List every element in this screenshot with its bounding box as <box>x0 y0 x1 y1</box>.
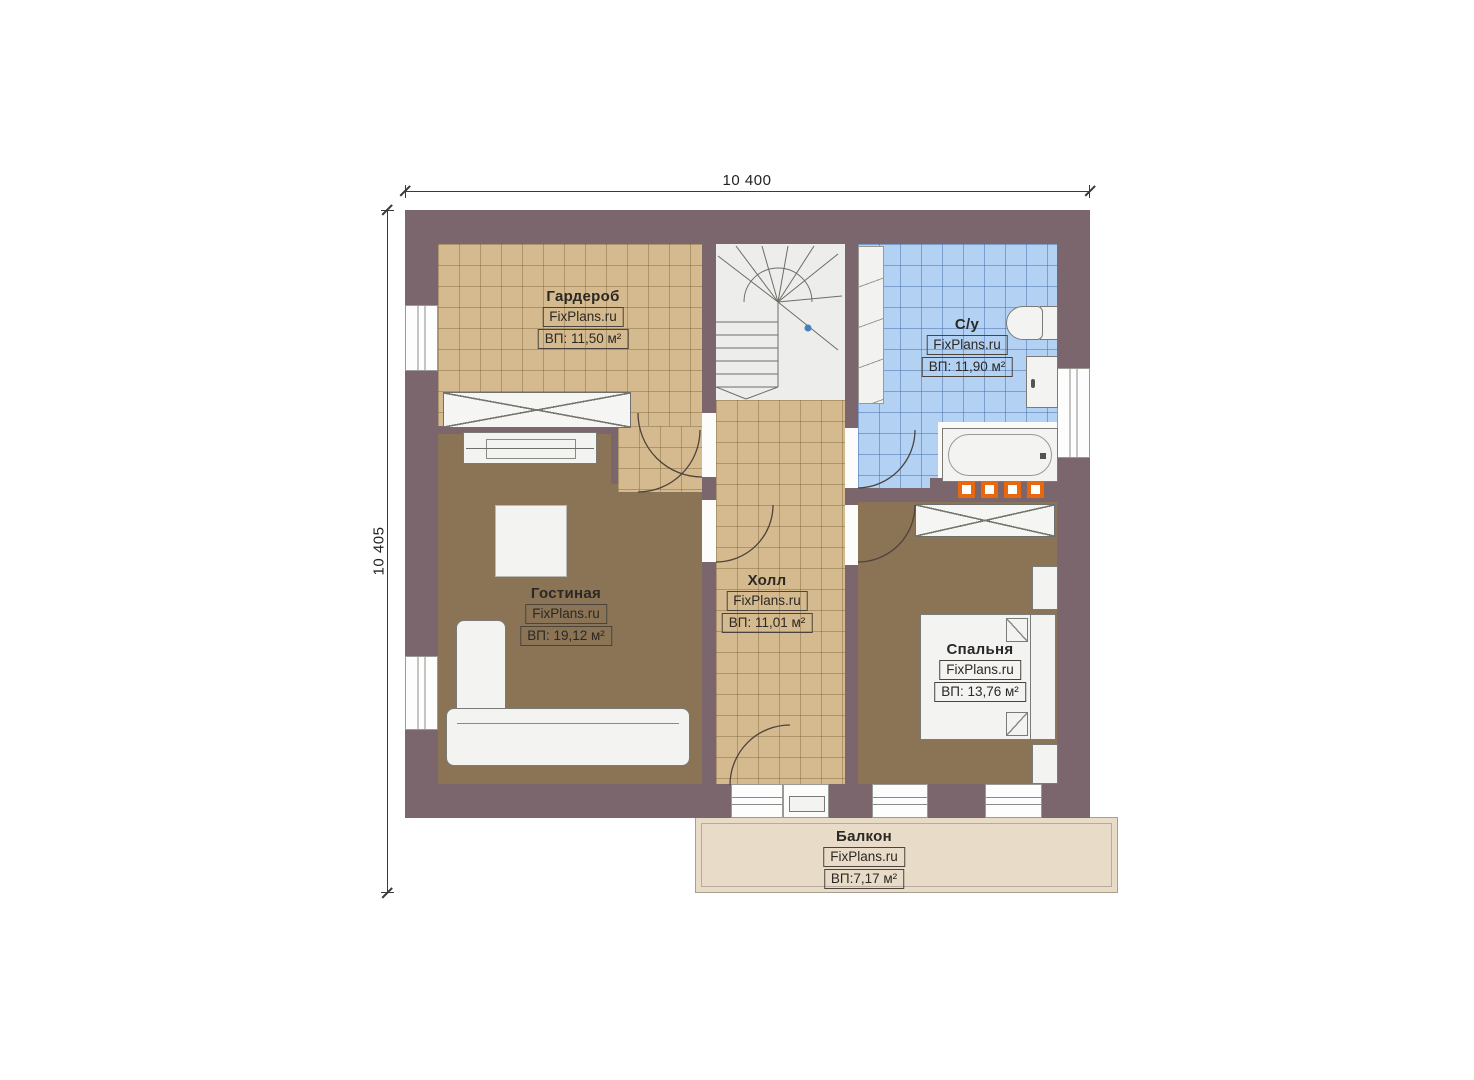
bathtub-basin <box>948 434 1052 476</box>
floor-plan-canvas: 10 400 10 405 <box>0 0 1474 1080</box>
room-area: ВП: 11,50 м² <box>538 329 629 349</box>
brand-badge: FixPlans.ru <box>926 335 1008 355</box>
sink-handle <box>1031 379 1035 388</box>
room-name: Гардероб <box>546 288 619 305</box>
room-name: Гостиная <box>531 585 601 602</box>
room-label-bedroom: Спальня FixPlans.ru ВП: 13,76 м² <box>934 641 1026 702</box>
room-label-hall: Холл FixPlans.ru ВП: 11,01 м² <box>722 572 813 633</box>
room-name: Холл <box>748 572 787 589</box>
room-label-living: Гостиная FixPlans.ru ВП: 19,12 м² <box>520 585 612 646</box>
brand-badge: FixPlans.ru <box>823 847 905 867</box>
bathroom-sink-cabinet <box>1026 356 1058 408</box>
room-area: ВП: 19,12 м² <box>520 626 612 646</box>
room-name: С/у <box>955 316 979 333</box>
wall-outer-right <box>1057 210 1090 818</box>
nightstand-bottom <box>1032 744 1058 784</box>
door-opening-living-upper <box>702 413 716 477</box>
room-label-balcony: Балкон FixPlans.ru ВП:7,17 м² <box>823 828 905 889</box>
dimension-label-top: 10 400 <box>723 172 772 189</box>
bed-pillow-top <box>1006 618 1028 642</box>
dimension-line-top <box>405 191 1090 192</box>
room-label-wardrobe: Гардероб FixPlans.ru ВП: 11,50 м² <box>538 288 629 349</box>
balcony-slab <box>695 817 1118 893</box>
room-area: ВП:7,17 м² <box>824 869 904 889</box>
sofa-seat-line <box>457 723 679 724</box>
wall-interior-bedroom-top <box>845 488 940 502</box>
radiator-segment <box>1004 481 1021 498</box>
dimension-extension <box>381 210 394 211</box>
door-opening-living-lower <box>702 500 716 562</box>
tv-stand-inner <box>486 439 576 459</box>
door-opening-bathroom <box>845 428 858 488</box>
staircase <box>716 244 845 400</box>
brand-badge: FixPlans.ru <box>726 591 808 611</box>
dimension-extension <box>405 185 406 198</box>
bathtub <box>942 428 1058 482</box>
staircase-drawing <box>716 244 845 400</box>
room-area: ВП: 11,90 м² <box>922 357 1013 377</box>
window-bottom-bedroom-2 <box>985 784 1042 818</box>
room-name: Балкон <box>836 828 892 845</box>
door-opening-bedroom <box>845 505 858 565</box>
wall-outer-top <box>405 210 1090 244</box>
brand-badge: FixPlans.ru <box>525 604 607 624</box>
room-area: ВП: 13,76 м² <box>934 682 1026 702</box>
dimension-extension <box>1089 185 1090 198</box>
window-left-upper <box>405 305 438 371</box>
bedroom-wardrobe-unit <box>915 504 1055 537</box>
bed-headboard <box>1030 614 1056 740</box>
radiator-segment <box>958 481 975 498</box>
balcony-door-leaf <box>789 796 825 812</box>
window-bottom-bedroom-1 <box>872 784 928 818</box>
tv-stand <box>463 432 597 464</box>
floor-vestibule-strip <box>618 426 702 492</box>
brand-badge: FixPlans.ru <box>939 660 1021 680</box>
dimension-label-left: 10 405 <box>371 527 388 576</box>
dimension-extension <box>381 892 394 893</box>
coffee-table <box>495 505 567 577</box>
tv-stand-line <box>466 448 594 449</box>
room-label-bathroom: С/у FixPlans.ru ВП: 11,90 м² <box>922 316 1013 377</box>
window-left-lower <box>405 656 438 730</box>
bathtub-faucet <box>1040 453 1046 459</box>
stair-marker-dot <box>805 325 812 332</box>
balcony-railing <box>701 823 1112 887</box>
bathroom-closet-strip <box>858 246 884 404</box>
bed-pillow-bottom <box>1006 712 1028 736</box>
window-right-bathroom <box>1057 368 1090 458</box>
radiator-segment <box>981 481 998 498</box>
sofa-seat <box>446 708 690 766</box>
room-name: Спальня <box>947 641 1014 658</box>
wall-interior-vestibule <box>611 426 618 484</box>
towel-radiator <box>958 481 1044 498</box>
room-area: ВП: 11,01 м² <box>722 613 813 633</box>
brand-badge: FixPlans.ru <box>542 307 624 327</box>
window-bottom-hall <box>731 784 783 818</box>
radiator-segment <box>1027 481 1044 498</box>
wardrobe-unit <box>443 392 631 428</box>
nightstand-top <box>1032 566 1058 610</box>
